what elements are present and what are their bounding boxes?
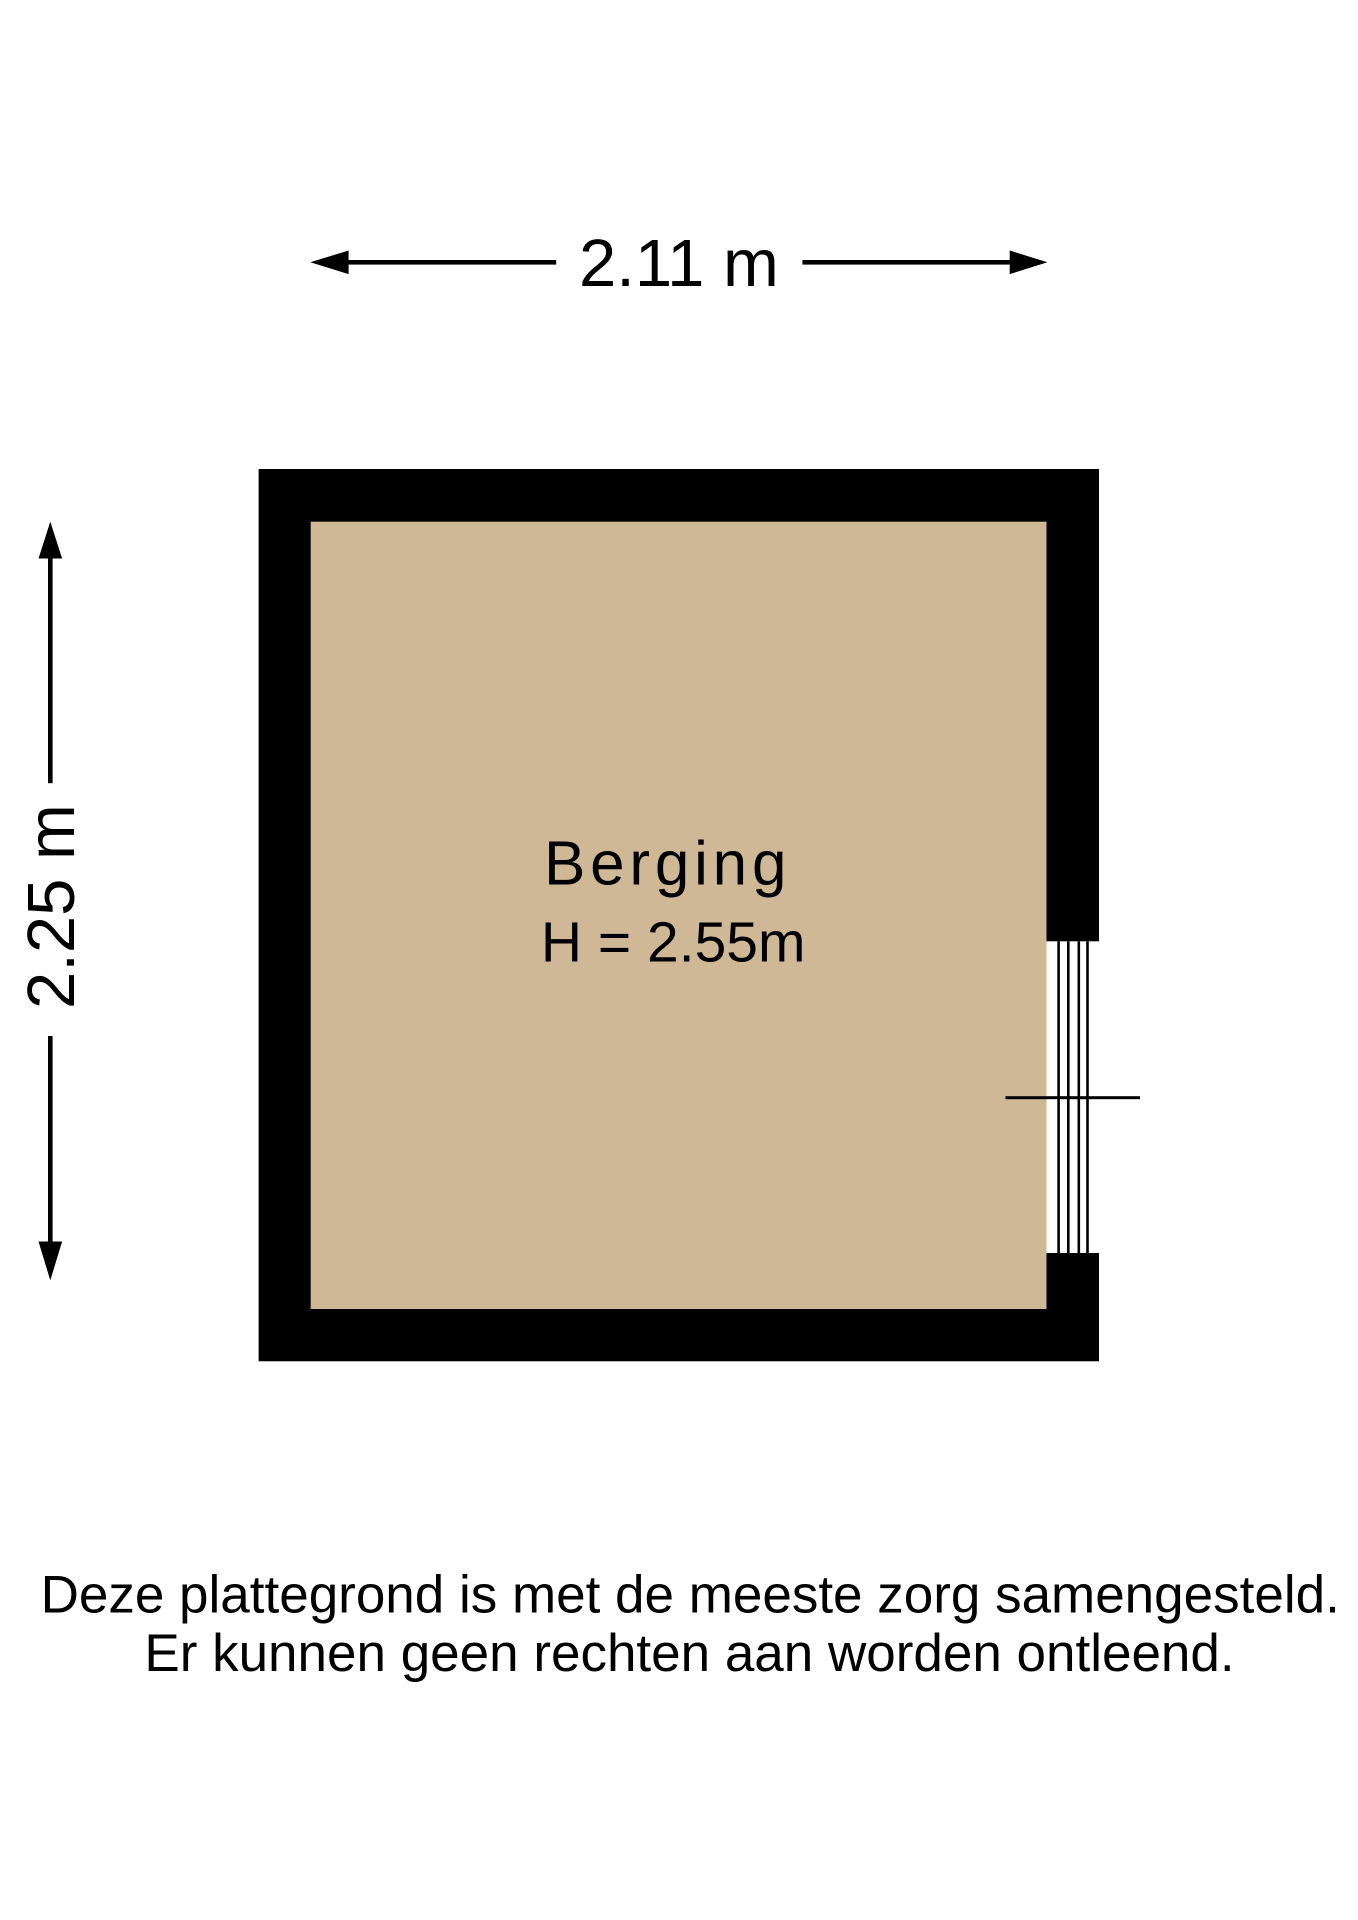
svg-text:H = 2.55m: H = 2.55m	[541, 911, 806, 975]
svg-text:Deze plattegrond is met de mee: Deze plattegrond is met de meeste zorg s…	[41, 1566, 1340, 1625]
svg-text:Er kunnen geen rechten aan wor: Er kunnen geen rechten aan worden ontlee…	[144, 1624, 1234, 1683]
svg-text:2.11 m: 2.11 m	[579, 226, 779, 301]
svg-text:2.25 m: 2.25 m	[14, 804, 89, 1009]
svg-text:Berging: Berging	[544, 830, 791, 899]
